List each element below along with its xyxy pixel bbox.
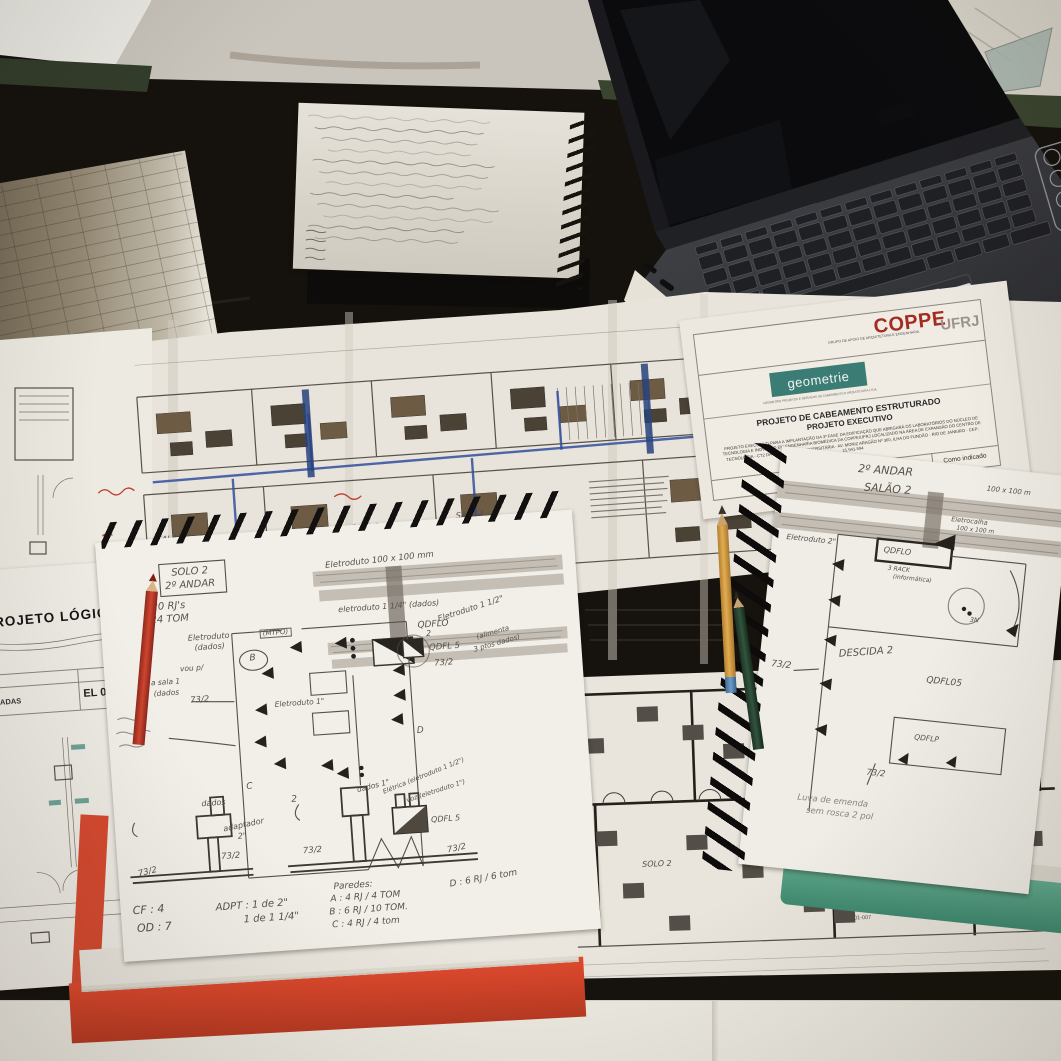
go-note-3: (dados [153,689,179,698]
geometrie-logo-text: geometrie [786,368,850,390]
go-note-2: a sala 1 [151,677,181,687]
coppe-caption: GRUPO DE APOIO DE ARQUITETURA E ENGENHAR… [825,330,920,346]
pencil-lead-tip [149,573,158,582]
det1-737a: 73/2 [221,852,241,862]
det1-dados: dados [201,799,226,809]
d-label: D [417,727,425,736]
pencil-wood-tip [716,513,728,526]
right-notebook: 2º ANDAR SALÃO 2 100 x 100 m Eletrocalha… [730,430,1061,930]
det2-num: 2 [291,796,297,805]
sketchpad-page: SOLO 2 2º ANDAR 20 RJ's 24 TOM Eletrodut… [95,510,601,962]
go-note-1: vou p/ [180,664,204,673]
pencil-graphite-tip [733,590,740,599]
handwriting-scribbles [293,103,585,279]
pencil-graphite-tip [718,505,726,514]
salao-label: SALÃO 2 [864,482,912,496]
det1-adapter2: 2" [238,832,247,841]
qdfl5-label: QDFL 5 [429,642,461,653]
notebook-page: 2º ANDAR SALÃO 2 100 x 100 m Eletrocalha… [738,446,1061,894]
n3-label: 3N [970,617,980,624]
737-right: 73/2 [434,658,454,668]
737-left: 73/2 [190,695,210,705]
andar-label: 2º ANDAR [858,463,914,478]
pencil-ferrule-blue [725,677,737,694]
det2-737a: 73/2 [303,846,323,856]
cf-note: CF : 4 [132,903,164,916]
b-label: B [249,654,256,663]
solo2-label: SOLO 2 [642,859,672,869]
desk-photo-scene: SALA 1 SALA 2 SALA 3 SALA 4 SALA 5 SOLO … [0,0,1061,1061]
fold-crease [712,1001,719,1061]
od-note: OD : 7 [137,921,173,934]
737b-label: 73/2 [866,769,886,779]
c-label: C [246,783,253,792]
ufrj-logo: UFRJ [939,312,980,334]
two-label: 2 [426,630,432,638]
